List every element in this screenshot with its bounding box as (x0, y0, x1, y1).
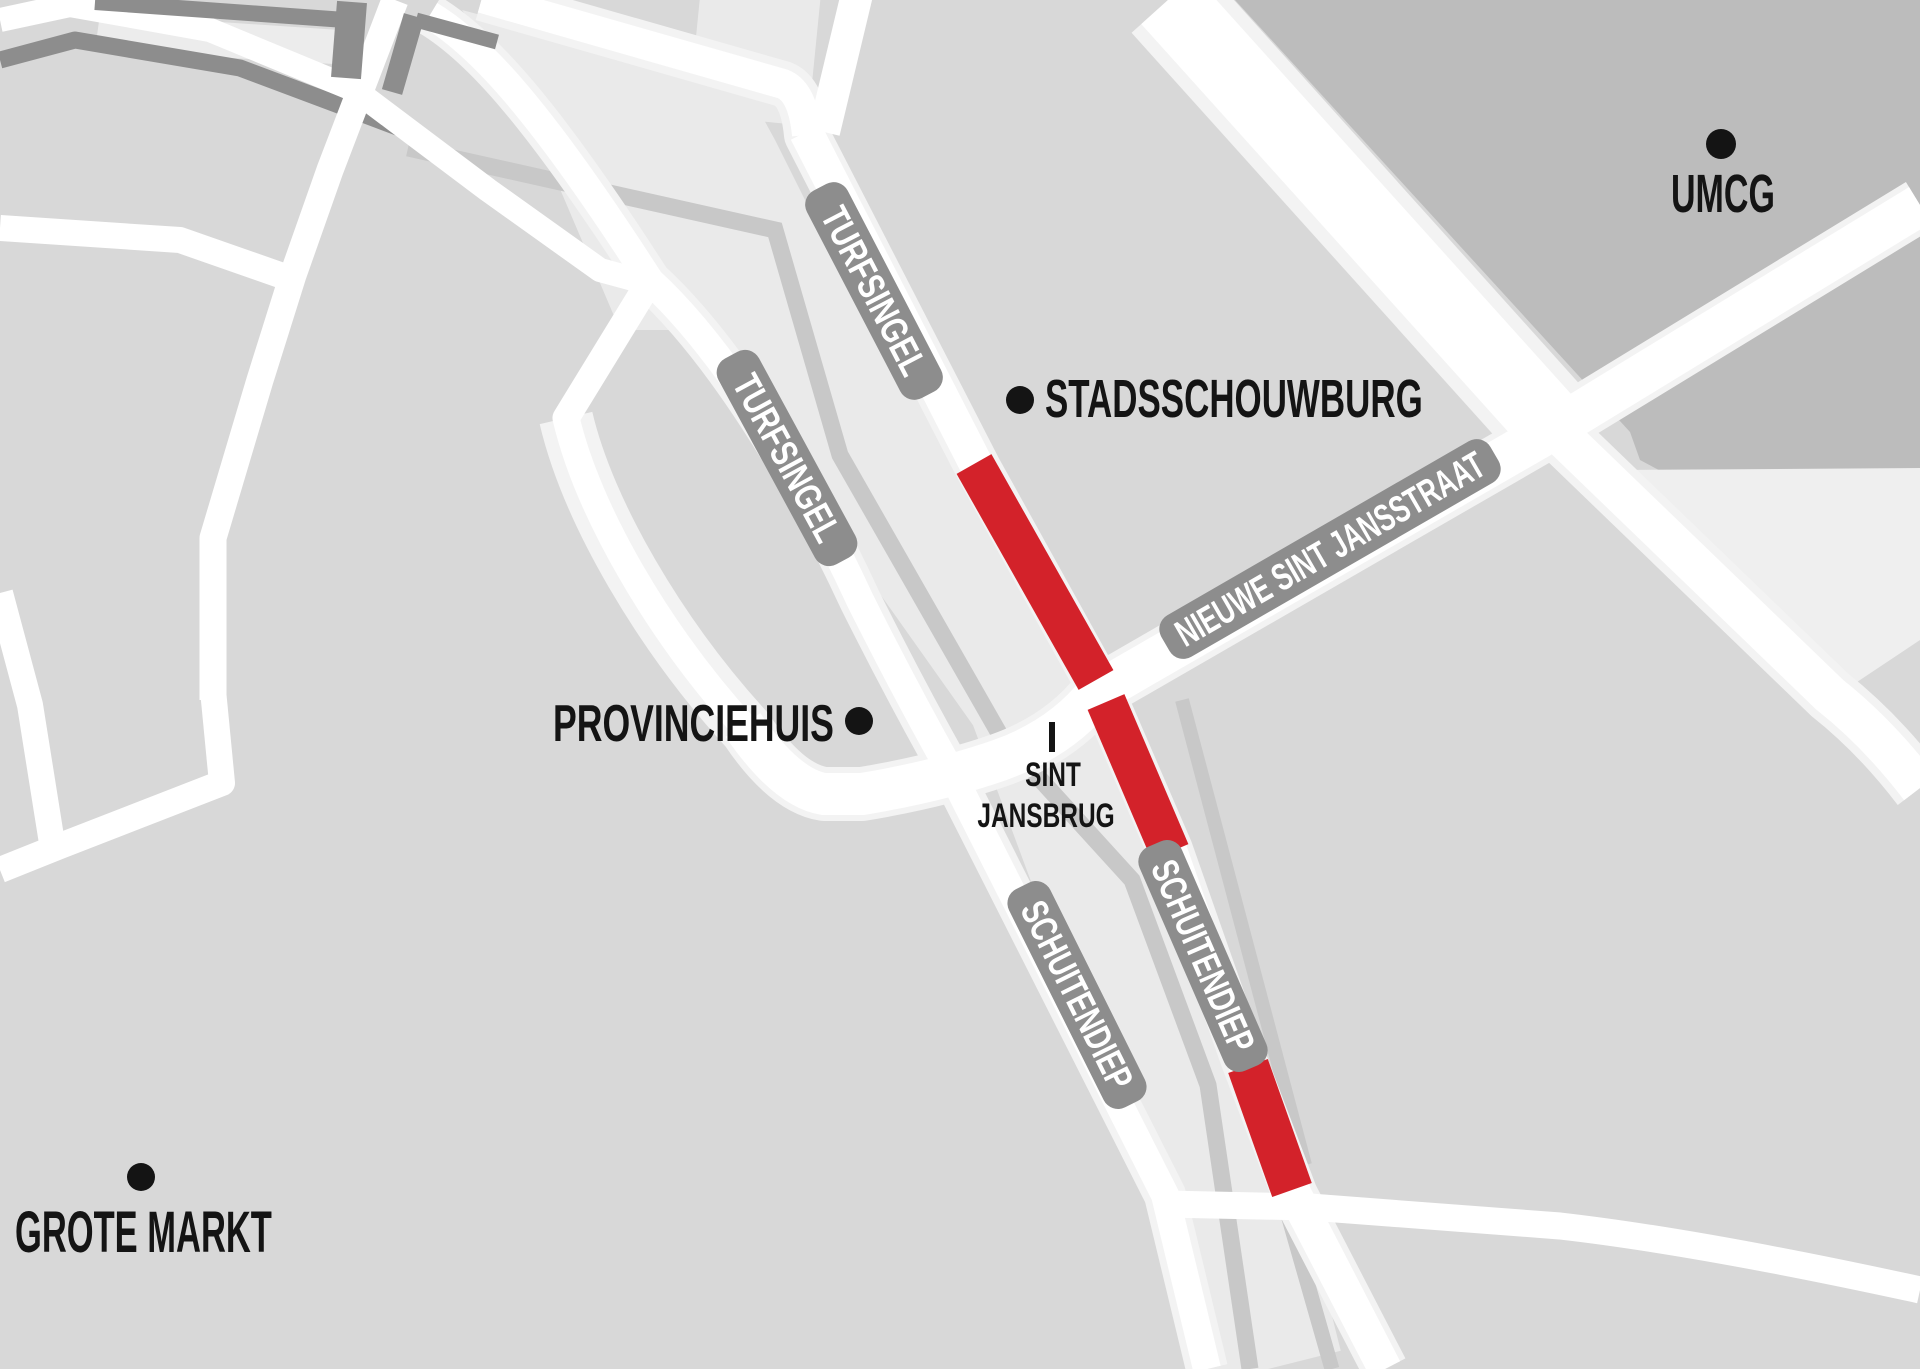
svg-text:JANSBRUG: JANSBRUG (977, 797, 1114, 835)
svg-text:UMCG: UMCG (1671, 163, 1775, 224)
svg-text:STADSSCHOUWBURG: STADSSCHOUWBURG (1045, 368, 1423, 429)
svg-text:GROTE MARKT: GROTE MARKT (15, 1201, 272, 1265)
svg-text:PROVINCIEHUIS: PROVINCIEHUIS (553, 695, 834, 752)
svg-text:SINT: SINT (1025, 756, 1081, 794)
